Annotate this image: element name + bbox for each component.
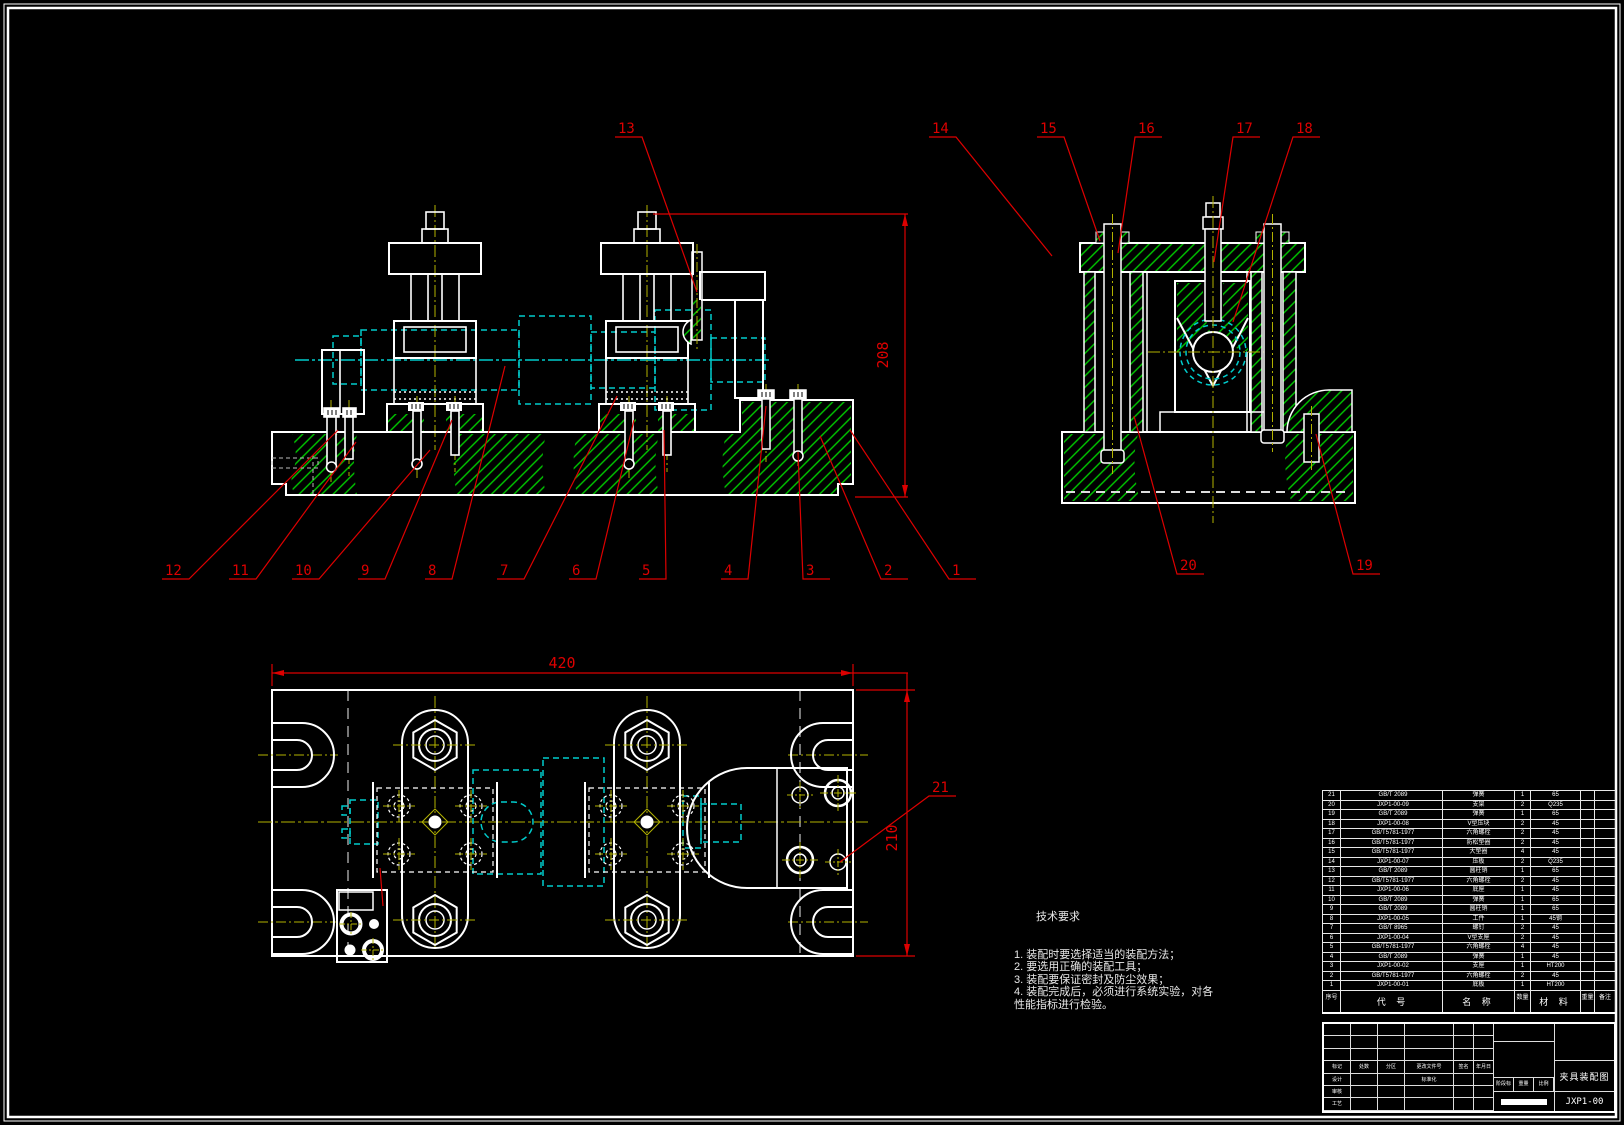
parts-list-cell: 2: [1514, 923, 1530, 933]
parts-list-cell: 1: [1514, 904, 1530, 914]
title-block-label: 处数: [1351, 1061, 1378, 1073]
tech-req-line: 2. 要选用正确的装配工具；: [1014, 961, 1213, 974]
weight-label: 重量: [1514, 1078, 1534, 1091]
parts-list-cell: JXP1-00-06: [1340, 885, 1442, 895]
parts-list-cell: 45: [1530, 952, 1580, 962]
parts-list-cell: 防松垫圈: [1442, 838, 1514, 848]
parts-list-cell: [1580, 980, 1594, 990]
parts-list-cell: 1: [1514, 885, 1530, 895]
sheet-count-bar: [1501, 1099, 1547, 1105]
drawing-number: JXP1-00: [1555, 1092, 1614, 1111]
parts-list-cell: 45: [1530, 933, 1580, 943]
callout-label-15: 15: [1040, 121, 1057, 137]
callout-label-14: 14: [932, 121, 949, 137]
parts-list-cell: 六角螺栓: [1442, 828, 1514, 838]
side-view: [1062, 196, 1355, 523]
title-block-label: 分区: [1378, 1061, 1405, 1073]
callout-label-8: 8: [428, 563, 436, 579]
parts-list-row: 1JXP1-00-01底板1HT200: [1322, 980, 1616, 990]
parts-list-row: 13GB/T 2089圆柱销165: [1322, 866, 1616, 876]
parts-list-cell: GB/T5781-1977: [1340, 942, 1442, 952]
title-block-cell: [1351, 1049, 1378, 1061]
parts-list-cell: [1580, 819, 1594, 829]
parts-list-cell: [1594, 895, 1616, 905]
parts-list-cell: 支座: [1442, 961, 1514, 971]
callout-label-4: 4: [724, 563, 732, 579]
parts-list-cell: 1: [1514, 952, 1530, 962]
parts-list-cell: 弹簧: [1442, 895, 1514, 905]
callout-leader-9: [358, 420, 452, 579]
parts-list-cell: 压板: [1442, 857, 1514, 867]
title-block: 标记处数分区更改文件号签名年月日设计标准化审核工艺 阶段标记 重量 比例 夹具装…: [1322, 1022, 1616, 1113]
parts-list-cell: 1: [1514, 866, 1530, 876]
parts-list-row: 9GB/T 2089圆柱销165: [1322, 904, 1616, 914]
parts-list-cell: 4: [1514, 847, 1530, 857]
title-block-label: 设计: [1324, 1074, 1351, 1086]
parts-list-cell: [1580, 933, 1594, 943]
callout-label-19: 19: [1356, 558, 1373, 574]
stage-label: 阶段标记: [1494, 1078, 1514, 1091]
parts-list-row: 2GB/T5781-1977六角螺栓245: [1322, 971, 1616, 981]
parts-list-cell: [1594, 923, 1616, 933]
parts-list-cell: GB/T 8965: [1340, 923, 1442, 933]
parts-list-cell: 1: [1322, 980, 1340, 990]
callout-label-3: 3: [806, 563, 814, 579]
callout-label-18: 18: [1296, 121, 1313, 137]
parts-list-table: 21GB/T 2089弹簧16520JXP1-00-09支架2Q23519GB/…: [1322, 790, 1616, 1014]
parts-list-cell: 65: [1530, 809, 1580, 819]
title-block-cell: [1405, 1036, 1454, 1048]
parts-list-cell: 重量: [1580, 990, 1594, 1012]
title-block-cell: [1378, 1086, 1405, 1098]
callout-label-2: 2: [884, 563, 892, 579]
title-block-cell: [1378, 1074, 1405, 1086]
parts-list-cell: 11: [1322, 885, 1340, 895]
parts-list-cell: 13: [1322, 866, 1340, 876]
parts-list-cell: 圆柱销: [1442, 904, 1514, 914]
parts-list-cell: 10: [1322, 895, 1340, 905]
callout-label-6: 6: [572, 563, 580, 579]
parts-list-cell: 19: [1322, 809, 1340, 819]
parts-list-cell: 圆柱销: [1442, 866, 1514, 876]
parts-list-cell: 2: [1514, 800, 1530, 810]
parts-list-cell: 支架: [1442, 800, 1514, 810]
tech-req-title: 技术要求: [1036, 911, 1213, 924]
parts-list-cell: 弹簧: [1442, 809, 1514, 819]
title-block-cell: [1405, 1024, 1454, 1036]
title-block-cell: [1474, 1074, 1494, 1086]
parts-list-cell: GB/T5781-1977: [1340, 971, 1442, 981]
parts-list-cell: [1594, 790, 1616, 800]
parts-list-cell: [1594, 942, 1616, 952]
parts-list-row: 15GB/T5781-1977大垫圈445: [1322, 847, 1616, 857]
title-block-cell: [1454, 1098, 1474, 1110]
scale-label: 比例: [1534, 1078, 1554, 1091]
parts-list-row: 18JXP1-00-08V型压块245: [1322, 819, 1616, 829]
tech-req-line: 1. 装配时要选择适当的装配方法；: [1014, 949, 1213, 962]
parts-list-cell: 备注: [1594, 990, 1616, 1012]
callout-label-7: 7: [500, 563, 508, 579]
parts-list-cell: GB/T 2089: [1340, 904, 1442, 914]
parts-list-cell: 2: [1514, 971, 1530, 981]
title-block-cell: [1474, 1024, 1494, 1036]
parts-list-cell: 1: [1514, 914, 1530, 924]
title-block-middle: 阶段标记 重量 比例: [1494, 1024, 1555, 1111]
callout-label-10: 10: [295, 563, 312, 579]
parts-list-cell: 1: [1514, 809, 1530, 819]
parts-list-row: 20JXP1-00-09支架2Q235: [1322, 800, 1616, 810]
title-block-label: 工艺: [1324, 1098, 1351, 1110]
parts-list-cell: 序号: [1322, 990, 1340, 1012]
title-block-revision-grid: 标记处数分区更改文件号签名年月日设计标准化审核工艺: [1324, 1024, 1494, 1111]
parts-list-cell: GB/T 2089: [1340, 790, 1442, 800]
parts-list-cell: 螺钉: [1442, 923, 1514, 933]
title-block-cell: [1378, 1024, 1405, 1036]
parts-list-cell: [1594, 961, 1616, 971]
parts-list-cell: 16: [1322, 838, 1340, 848]
parts-list-row: 16GB/T5781-1977防松垫圈245: [1322, 838, 1616, 848]
parts-list-cell: JXP1-00-04: [1340, 933, 1442, 943]
parts-list-cell: [1580, 914, 1594, 924]
parts-list-cell: 底板: [1442, 980, 1514, 990]
title-block-cell: [1351, 1086, 1378, 1098]
title-block-cell: [1405, 1049, 1454, 1061]
parts-list-cell: [1594, 885, 1616, 895]
parts-list-cell: 大垫圈: [1442, 847, 1514, 857]
title-block-cell: [1474, 1098, 1494, 1110]
parts-list-cell: [1580, 961, 1594, 971]
parts-list-row: 21GB/T 2089弹簧165: [1322, 790, 1616, 800]
parts-list-cell: [1580, 790, 1594, 800]
title-block-label: 更改文件号: [1405, 1061, 1454, 1073]
parts-list-cell: 18: [1322, 819, 1340, 829]
parts-list-cell: 代 号: [1340, 990, 1442, 1012]
parts-list-cell: 4: [1322, 952, 1340, 962]
parts-list-cell: 1: [1514, 790, 1530, 800]
title-block-cell: [1378, 1098, 1405, 1110]
parts-list-cell: 弹簧: [1442, 952, 1514, 962]
parts-list-cell: 3: [1322, 961, 1340, 971]
parts-list-cell: [1594, 904, 1616, 914]
parts-list-cell: HT200: [1530, 961, 1580, 971]
parts-list-cell: 六角螺栓: [1442, 971, 1514, 981]
parts-list-cell: 65: [1530, 904, 1580, 914]
parts-list-cell: Q235: [1530, 800, 1580, 810]
callout-label-20: 20: [1180, 558, 1197, 574]
parts-list-cell: GB/T5781-1977: [1340, 828, 1442, 838]
parts-list-cell: 14: [1322, 857, 1340, 867]
title-block-cell: [1324, 1024, 1351, 1036]
parts-list-row: 17GB/T5781-1977六角螺栓245: [1322, 828, 1616, 838]
title-block-cell: [1351, 1036, 1378, 1048]
title-block-cell: [1474, 1086, 1494, 1098]
parts-list-cell: GB/T 2089: [1340, 952, 1442, 962]
parts-list-cell: [1594, 857, 1616, 867]
title-block-label: 审核: [1324, 1086, 1351, 1098]
parts-list-cell: 65: [1530, 790, 1580, 800]
parts-list-cell: 2: [1514, 838, 1530, 848]
parts-list-cell: HT200: [1530, 980, 1580, 990]
parts-list-cell: 名 称: [1442, 990, 1514, 1012]
parts-list-cell: [1594, 980, 1616, 990]
parts-list-row: 11JXP1-00-06底座145: [1322, 885, 1616, 895]
parts-list-cell: [1580, 809, 1594, 819]
parts-list-cell: 数量: [1514, 990, 1530, 1012]
title-block-cell: [1324, 1036, 1351, 1048]
tech-req-line: 4. 装配完成后，必须进行系统实验，对各: [1014, 986, 1213, 999]
dim-plan-width: 420: [548, 654, 575, 672]
callout-label-1: 1: [952, 563, 960, 579]
callout-leader-14: [929, 137, 1052, 256]
parts-list-cell: [1594, 933, 1616, 943]
parts-list-cell: 7: [1322, 923, 1340, 933]
parts-list-cell: 2: [1514, 819, 1530, 829]
parts-list-cell: [1594, 876, 1616, 886]
parts-list-cell: 1: [1514, 895, 1530, 905]
tech-req-line: 性能指标进行检验。: [1014, 999, 1213, 1012]
parts-list-header: 序号代 号名 称数量材 料重量备注: [1322, 990, 1616, 1014]
parts-list-cell: [1594, 819, 1616, 829]
parts-list-cell: JXP1-00-08: [1340, 819, 1442, 829]
parts-list-cell: GB/T5781-1977: [1340, 838, 1442, 848]
clamp-strap-left: [373, 696, 497, 950]
parts-list-cell: [1594, 838, 1616, 848]
tech-req-line: 3. 装配要保证密封及防尘效果；: [1014, 974, 1213, 987]
parts-list-cell: 弹簧: [1442, 790, 1514, 800]
title-block-cell: [1474, 1036, 1494, 1048]
parts-list-cell: 2: [1514, 828, 1530, 838]
parts-list-cell: V型支座: [1442, 933, 1514, 943]
parts-list-cell: [1580, 800, 1594, 810]
parts-list-cell: [1580, 952, 1594, 962]
parts-list-cell: 45: [1530, 885, 1580, 895]
callout-leader-20: [1134, 416, 1204, 574]
parts-list-cell: 45: [1530, 923, 1580, 933]
parts-list-cell: 21: [1322, 790, 1340, 800]
front-view: [272, 205, 853, 497]
parts-list-cell: [1580, 971, 1594, 981]
callout-label-13: 13: [618, 121, 635, 137]
technical-requirements: 技术要求 1. 装配时要选择适当的装配方法；2. 要选用正确的装配工具；3. 装…: [1014, 886, 1213, 1024]
parts-list-cell: 4: [1514, 942, 1530, 952]
parts-list-cell: Q235: [1530, 857, 1580, 867]
callout-label-5: 5: [642, 563, 650, 579]
parts-list-cell: 45: [1530, 828, 1580, 838]
parts-list-cell: 45: [1530, 819, 1580, 829]
parts-list-cell: 45: [1530, 847, 1580, 857]
title-block-cell: [1454, 1036, 1474, 1048]
callout-leader-1: [850, 430, 976, 579]
parts-list-cell: 六角螺栓: [1442, 942, 1514, 952]
parts-list-cell: 2: [1514, 933, 1530, 943]
parts-list-cell: 工件: [1442, 914, 1514, 924]
parts-list-row: 6JXP1-00-04V型支座245: [1322, 933, 1616, 943]
title-block-label: 标准化: [1405, 1074, 1454, 1086]
parts-list-cell: 17: [1322, 828, 1340, 838]
parts-list-cell: 45: [1530, 876, 1580, 886]
parts-list-cell: GB/T 2089: [1340, 809, 1442, 819]
parts-list-cell: JXP1-00-01: [1340, 980, 1442, 990]
title-block-cell: [1454, 1049, 1474, 1061]
parts-list-row: 8JXP1-00-05工件145钢: [1322, 914, 1616, 924]
parts-list-row: 5GB/T5781-1977六角螺栓445: [1322, 942, 1616, 952]
parts-list-cell: [1580, 895, 1594, 905]
parts-list-cell: 2: [1322, 971, 1340, 981]
title-block-cell: [1474, 1049, 1494, 1061]
callout-label-17: 17: [1236, 121, 1253, 137]
parts-list-cell: [1580, 904, 1594, 914]
parts-list-cell: [1594, 847, 1616, 857]
title-block-cell: [1351, 1024, 1378, 1036]
title-block-cell: [1324, 1049, 1351, 1061]
parts-list-cell: [1594, 800, 1616, 810]
parts-list-cell: GB/T 2089: [1340, 866, 1442, 876]
parts-list-cell: 底座: [1442, 885, 1514, 895]
parts-list-row: 7GB/T 8965螺钉245: [1322, 923, 1616, 933]
parts-list-cell: 20: [1322, 800, 1340, 810]
title-block-cell: [1454, 1024, 1474, 1036]
parts-list-cell: 9: [1322, 904, 1340, 914]
parts-list-cell: 45: [1530, 942, 1580, 952]
callout-label-16: 16: [1138, 121, 1155, 137]
title-block-cell: [1351, 1074, 1378, 1086]
parts-list-row: 14JXP1-00-07压板2Q235: [1322, 857, 1616, 867]
drawing-sheet: 208 420 210 1234567891011121314151617181…: [0, 0, 1624, 1125]
parts-list-cell: [1580, 847, 1594, 857]
parts-list-cell: [1580, 857, 1594, 867]
parts-list-cell: 65: [1530, 895, 1580, 905]
parts-list-cell: GB/T5781-1977: [1340, 847, 1442, 857]
callout-label-9: 9: [361, 563, 369, 579]
parts-list-cell: 45: [1530, 971, 1580, 981]
parts-list-cell: 45钢: [1530, 914, 1580, 924]
callout-label-12: 12: [165, 563, 182, 579]
title-block-cell: [1405, 1086, 1454, 1098]
parts-list-cell: JXP1-00-07: [1340, 857, 1442, 867]
parts-list-cell: 1: [1514, 961, 1530, 971]
title-block-cell: [1405, 1098, 1454, 1110]
title-block-label: 签名: [1454, 1061, 1474, 1073]
parts-list-row: 3JXP1-00-02支座1HT200: [1322, 961, 1616, 971]
parts-list-cell: 材 料: [1530, 990, 1580, 1012]
parts-list-cell: 5: [1322, 942, 1340, 952]
parts-list-cell: [1580, 838, 1594, 848]
parts-list-cell: [1594, 809, 1616, 819]
parts-list-cell: [1580, 885, 1594, 895]
parts-list-cell: [1594, 866, 1616, 876]
parts-list-cell: 六角螺栓: [1442, 876, 1514, 886]
parts-list-cell: 2: [1514, 857, 1530, 867]
parts-list-cell: 6: [1322, 933, 1340, 943]
parts-list-cell: GB/T 2089: [1340, 895, 1442, 905]
drawing-title: 夹具装配图: [1555, 1061, 1614, 1092]
parts-list-cell: [1594, 914, 1616, 924]
callout-leader-15: [1037, 137, 1100, 241]
parts-list-cell: GB/T5781-1977: [1340, 876, 1442, 886]
title-block-cell: [1454, 1086, 1474, 1098]
parts-list-cell: [1594, 828, 1616, 838]
parts-list-cell: V型压块: [1442, 819, 1514, 829]
title-block-cell: [1351, 1098, 1378, 1110]
title-block-label: 标记: [1324, 1061, 1351, 1073]
parts-list-cell: 15: [1322, 847, 1340, 857]
parts-list-cell: JXP1-00-09: [1340, 800, 1442, 810]
parts-list-cell: 2: [1514, 876, 1530, 886]
title-block-label: 年月日: [1474, 1061, 1494, 1073]
parts-list-cell: [1594, 971, 1616, 981]
parts-list-cell: [1580, 942, 1594, 952]
parts-list-cell: [1580, 876, 1594, 886]
parts-list-cell: [1580, 923, 1594, 933]
parts-list-cell: 1: [1514, 980, 1530, 990]
callout-label-21: 21: [932, 780, 949, 796]
parts-list-cell: 8: [1322, 914, 1340, 924]
callout-label-11: 11: [232, 563, 249, 579]
parts-list-cell: JXP1-00-02: [1340, 961, 1442, 971]
parts-list-row: 12GB/T5781-1977六角螺栓245: [1322, 876, 1616, 886]
title-block-blank: [1555, 1024, 1614, 1061]
parts-list-row: 19GB/T 2089弹簧165: [1322, 809, 1616, 819]
parts-list-cell: 12: [1322, 876, 1340, 886]
parts-list-cell: JXP1-00-05: [1340, 914, 1442, 924]
parts-list-row: 4GB/T 2089弹簧145: [1322, 952, 1616, 962]
title-block-cell: [1378, 1049, 1405, 1061]
dim-front-height: 208: [874, 341, 892, 368]
parts-list-cell: 65: [1530, 866, 1580, 876]
plan-view: [258, 690, 868, 962]
parts-list-row: 10GB/T 2089弹簧165: [1322, 895, 1616, 905]
parts-list-cell: [1594, 952, 1616, 962]
parts-list-cell: [1580, 866, 1594, 876]
title-block-cell: [1454, 1074, 1474, 1086]
parts-list-cell: [1580, 828, 1594, 838]
title-block-cell: [1378, 1036, 1405, 1048]
parts-list-cell: 45: [1530, 838, 1580, 848]
